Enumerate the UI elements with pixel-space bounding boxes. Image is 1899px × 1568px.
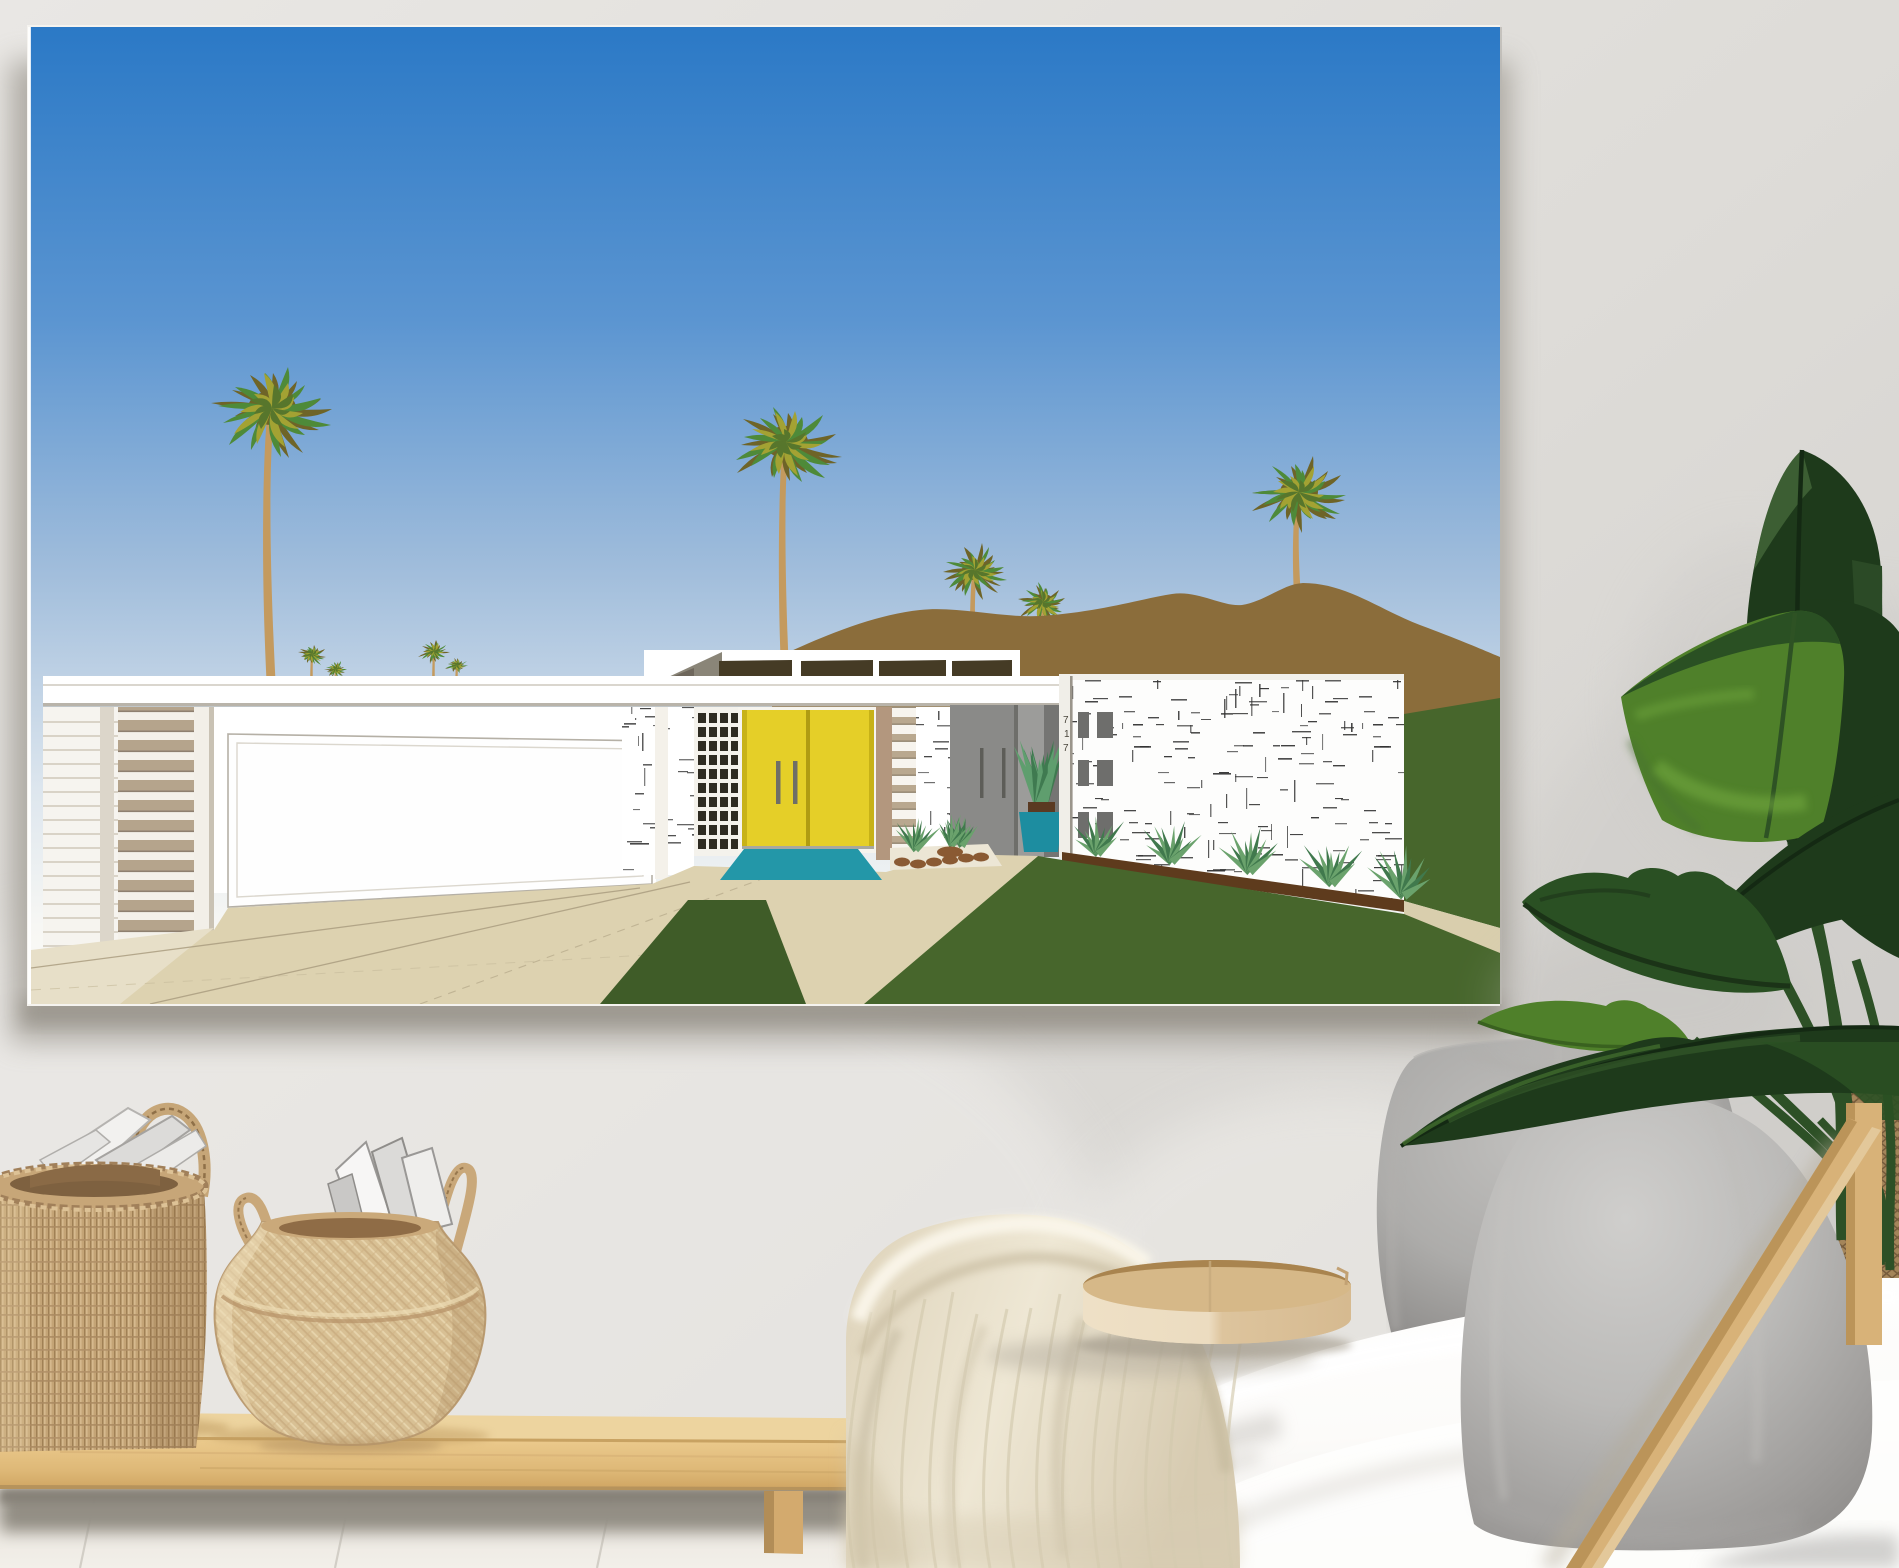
svg-text:7: 7 [1063, 743, 1069, 754]
svg-text:1: 1 [1064, 729, 1070, 740]
svg-text:7: 7 [1063, 715, 1069, 726]
